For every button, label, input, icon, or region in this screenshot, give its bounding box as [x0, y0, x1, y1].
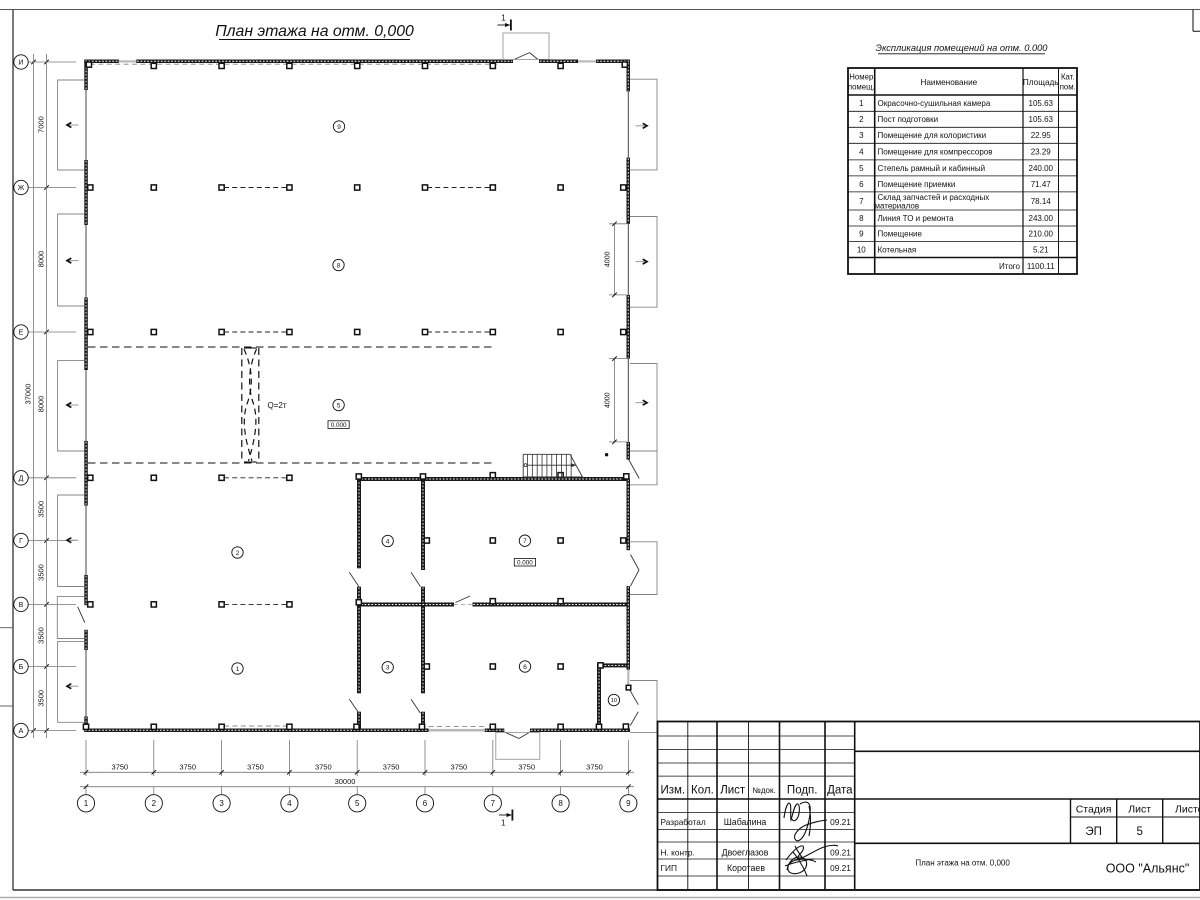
svg-text:пом.: пом.: [1060, 83, 1076, 92]
svg-text:ГИП: ГИП: [661, 863, 677, 873]
svg-text:3: 3: [219, 799, 224, 808]
svg-text:3500: 3500: [37, 627, 46, 644]
svg-text:Линия ТО и ремонта: Линия ТО и ремонта: [878, 214, 955, 223]
svg-text:1: 1: [501, 819, 506, 828]
svg-text:А: А: [19, 728, 24, 735]
svg-text:3750: 3750: [383, 763, 400, 772]
svg-text:4000: 4000: [605, 392, 612, 408]
svg-text:2: 2: [859, 115, 864, 124]
svg-text:9: 9: [337, 124, 341, 131]
svg-text:1: 1: [501, 14, 506, 23]
svg-text:3750: 3750: [315, 763, 332, 772]
svg-text:Q=2т: Q=2т: [268, 401, 287, 410]
svg-text:6: 6: [859, 180, 864, 189]
svg-text:7: 7: [523, 538, 527, 545]
svg-text:8: 8: [859, 214, 864, 223]
svg-text:3750: 3750: [112, 763, 129, 772]
svg-text:8000: 8000: [37, 251, 46, 268]
svg-text:Помещение: Помещение: [878, 230, 923, 239]
svg-text:105.63: 105.63: [1029, 99, 1054, 108]
svg-text:Степель рамный и кабинный: Степель рамный и кабинный: [878, 164, 986, 173]
svg-text:2: 2: [236, 550, 240, 557]
svg-text:3750: 3750: [179, 763, 196, 772]
svg-text:71.47: 71.47: [1031, 180, 1052, 189]
svg-text:5: 5: [859, 164, 864, 173]
svg-text:8000: 8000: [37, 396, 46, 413]
svg-text:Ж: Ж: [18, 185, 25, 192]
svg-text:37000: 37000: [24, 384, 33, 405]
svg-text:09.21: 09.21: [830, 817, 851, 827]
svg-text:Помещение для колористики: Помещение для колористики: [878, 131, 987, 140]
svg-text:ЭП: ЭП: [1085, 826, 1102, 838]
svg-text:№док.: №док.: [752, 786, 775, 795]
svg-text:Двоеглазов: Двоеглазов: [722, 848, 769, 858]
svg-text:План этажа на отм. 0,000: План этажа на отм. 0,000: [215, 23, 414, 40]
svg-text:6: 6: [423, 799, 428, 808]
svg-text:1100.11: 1100.11: [1027, 262, 1055, 271]
svg-text:Разработал: Разработал: [661, 817, 706, 827]
svg-text:3: 3: [859, 131, 864, 140]
svg-text:Помещение для компрессоров: Помещение для компрессоров: [878, 148, 993, 157]
svg-text:5.21: 5.21: [1033, 245, 1049, 254]
svg-text:ООО "Альянс": ООО "Альянс": [1106, 862, 1190, 876]
svg-text:2: 2: [152, 799, 157, 808]
svg-text:4: 4: [859, 148, 864, 157]
svg-text:Н. контр.: Н. контр.: [661, 848, 695, 858]
svg-text:4: 4: [386, 538, 390, 545]
svg-text:30000: 30000: [335, 777, 356, 786]
svg-text:Помещение приемки: Помещение приемки: [878, 180, 956, 189]
svg-text:3500: 3500: [37, 501, 46, 518]
svg-text:3750: 3750: [586, 763, 603, 772]
svg-text:Листов: Листов: [1175, 804, 1200, 816]
svg-text:И: И: [18, 60, 23, 67]
svg-text:Площадь: Площадь: [1023, 78, 1059, 87]
svg-text:105.63: 105.63: [1029, 115, 1054, 124]
svg-text:Б: Б: [19, 664, 24, 671]
svg-text:3500: 3500: [37, 690, 46, 707]
svg-text:План этажа на отм. 0,000: План этажа на отм. 0,000: [915, 859, 1010, 868]
svg-text:1: 1: [859, 99, 864, 108]
svg-text:243.00: 243.00: [1029, 214, 1054, 223]
svg-text:Подп.: Подп.: [787, 785, 818, 797]
svg-text:Котельная: Котельная: [878, 245, 917, 254]
svg-text:23.29: 23.29: [1031, 148, 1052, 157]
svg-text:3750: 3750: [451, 763, 468, 772]
svg-text:Шабалина: Шабалина: [724, 817, 767, 827]
svg-text:9: 9: [626, 799, 631, 808]
svg-text:10: 10: [611, 698, 617, 704]
svg-text:3: 3: [386, 665, 390, 672]
svg-text:8: 8: [558, 799, 563, 808]
svg-text:Коротаев: Коротаев: [727, 863, 765, 873]
svg-text:Стадия: Стадия: [1076, 804, 1112, 816]
svg-text:3750: 3750: [518, 763, 535, 772]
svg-text:1: 1: [84, 799, 89, 808]
svg-text:210.00: 210.00: [1029, 230, 1054, 239]
svg-text:В: В: [19, 602, 24, 609]
svg-text:Лист: Лист: [720, 785, 746, 797]
svg-text:10: 10: [857, 245, 866, 254]
svg-text:8: 8: [337, 262, 341, 269]
svg-text:7: 7: [859, 197, 864, 206]
svg-text:5: 5: [1136, 826, 1142, 838]
svg-text:09.21: 09.21: [830, 863, 851, 873]
svg-text:0.000: 0.000: [517, 560, 533, 567]
svg-text:7000: 7000: [37, 116, 46, 133]
svg-text:Г: Г: [19, 538, 23, 545]
svg-text:помещ.: помещ.: [848, 83, 875, 92]
svg-text:5: 5: [337, 402, 341, 409]
svg-text:Кол.: Кол.: [691, 785, 714, 797]
svg-text:Е: Е: [19, 330, 24, 337]
svg-text:240.00: 240.00: [1029, 164, 1054, 173]
svg-text:9: 9: [859, 230, 864, 239]
svg-text:Номер: Номер: [849, 73, 874, 82]
svg-text:Дата: Дата: [827, 785, 853, 797]
svg-text:Изм.: Изм.: [660, 785, 685, 797]
svg-text:5: 5: [355, 799, 360, 808]
svg-text:4: 4: [287, 799, 292, 808]
svg-text:4000: 4000: [605, 251, 612, 267]
svg-text:3500: 3500: [37, 564, 46, 581]
svg-text:Окрасочно-сушильная камера: Окрасочно-сушильная камера: [878, 99, 991, 108]
svg-text:Лист: Лист: [1128, 804, 1151, 816]
svg-text:Кат.: Кат.: [1061, 73, 1075, 82]
svg-text:78.14: 78.14: [1031, 197, 1052, 206]
svg-text:Экспликация помещений на отм.: Экспликация помещений на отм. 0.000: [876, 43, 1049, 53]
svg-text:6: 6: [523, 664, 527, 671]
svg-text:Д: Д: [19, 475, 24, 482]
svg-text:3750: 3750: [247, 763, 264, 772]
svg-text:Итого: Итого: [999, 262, 1021, 271]
svg-text:Пост подготовки: Пост подготовки: [878, 115, 939, 124]
svg-text:7: 7: [491, 799, 496, 808]
svg-text:материалов: материалов: [875, 201, 920, 210]
svg-text:1: 1: [236, 666, 240, 673]
svg-text:0.000: 0.000: [331, 422, 347, 429]
svg-text:09.21: 09.21: [830, 848, 851, 858]
svg-text:22.95: 22.95: [1031, 131, 1052, 140]
svg-text:Наименование: Наименование: [920, 78, 977, 87]
